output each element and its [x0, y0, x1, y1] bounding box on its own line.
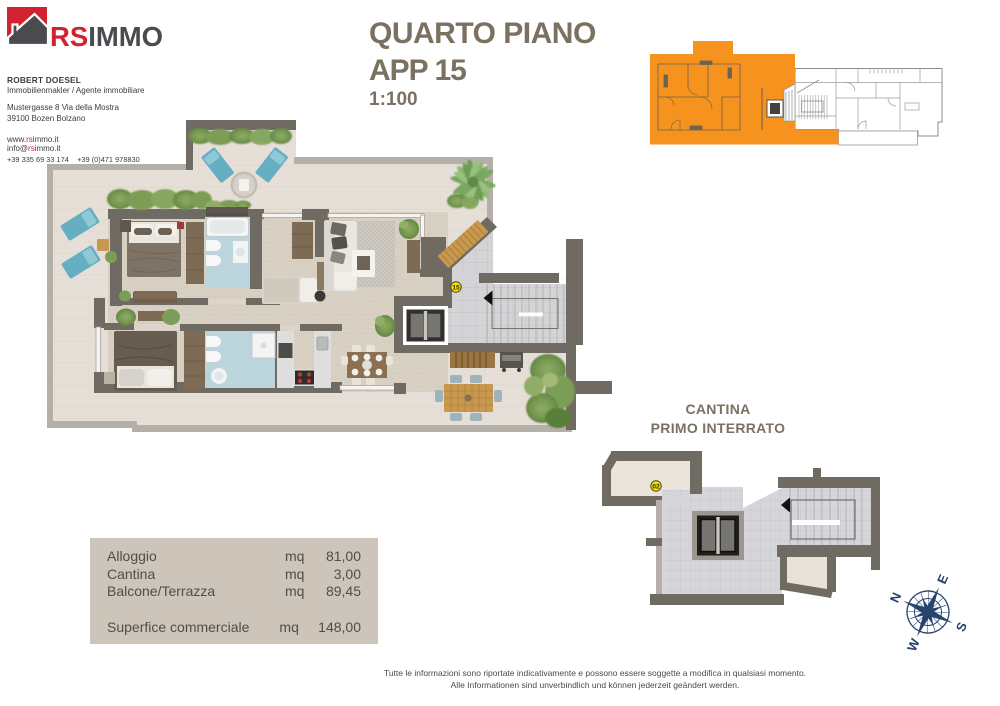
svg-text:E: E: [934, 572, 951, 586]
svg-text:15: 15: [452, 285, 460, 292]
svg-text:02: 02: [652, 484, 660, 491]
svg-text:W: W: [904, 636, 923, 654]
svg-text:S: S: [953, 620, 970, 634]
svg-text:N: N: [887, 590, 905, 605]
